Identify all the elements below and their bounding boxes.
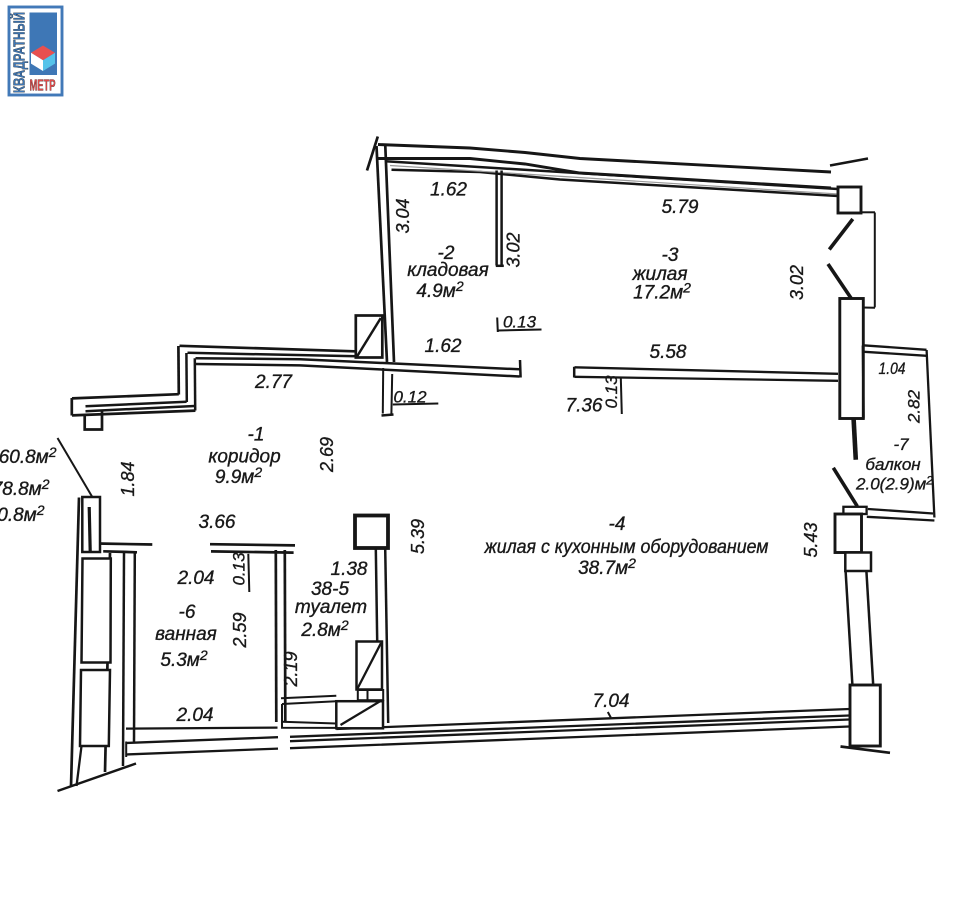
svg-text:туалет: туалет xyxy=(295,597,367,618)
svg-text:МЕТР: МЕТР xyxy=(30,78,56,95)
svg-text:0.13: 0.13 xyxy=(230,552,249,586)
svg-text:2.0(2.9)м2: 2.0(2.9)м2 xyxy=(855,474,933,494)
svg-text:3.66: 3.66 xyxy=(199,512,236,533)
svg-text:2.04: 2.04 xyxy=(176,705,214,726)
svg-text:КВАДРАТНЫЙ: КВАДРАТНЫЙ xyxy=(11,12,29,93)
svg-text:0.13: 0.13 xyxy=(503,313,537,332)
svg-text:1.62: 1.62 xyxy=(430,180,467,201)
svg-text:-3: -3 xyxy=(662,245,679,266)
svg-text:2.77: 2.77 xyxy=(254,372,293,393)
svg-text:0.12: 0.12 xyxy=(393,388,427,407)
svg-text:5.79: 5.79 xyxy=(662,197,699,218)
svg-text:5.39: 5.39 xyxy=(408,519,428,554)
svg-text:1.84: 1.84 xyxy=(118,461,138,496)
svg-text:кладовая: кладовая xyxy=(407,260,489,281)
svg-text:3.04: 3.04 xyxy=(393,198,413,233)
svg-text:2.69: 2.69 xyxy=(317,437,337,473)
svg-text:2.19: 2.19 xyxy=(281,651,301,687)
svg-text:3.02: 3.02 xyxy=(504,232,524,267)
svg-text:1.38: 1.38 xyxy=(331,559,368,580)
svg-text:жилая с кухонным оборудованием: жилая с кухонным оборудованием xyxy=(484,537,769,558)
svg-text:ванная: ванная xyxy=(155,624,217,645)
svg-text:3.02: 3.02 xyxy=(787,265,807,300)
svg-text:5.58: 5.58 xyxy=(650,342,687,363)
svg-text:коридор: коридор xyxy=(208,447,280,468)
svg-text:17.2м2: 17.2м2 xyxy=(633,280,691,304)
svg-text:2.59: 2.59 xyxy=(230,612,250,648)
svg-text:-6: -6 xyxy=(179,602,196,623)
svg-text:1.62: 1.62 xyxy=(425,336,462,357)
svg-text:0.13: 0.13 xyxy=(602,375,621,409)
svg-text:-4: -4 xyxy=(609,514,626,535)
svg-text:2.82: 2.82 xyxy=(905,389,924,424)
svg-text:60.8м2: 60.8м2 xyxy=(0,444,57,468)
svg-text:2.04: 2.04 xyxy=(177,568,215,589)
svg-text:балкон: балкон xyxy=(865,455,921,474)
svg-text:-1: -1 xyxy=(248,425,265,446)
svg-text:38.7м2: 38.7м2 xyxy=(578,555,636,579)
svg-text:1.04: 1.04 xyxy=(879,359,906,378)
svg-text:7.04: 7.04 xyxy=(593,691,630,712)
svg-text:7.36: 7.36 xyxy=(566,396,603,417)
svg-text:-7: -7 xyxy=(893,435,909,454)
svg-text:5.43: 5.43 xyxy=(801,522,821,557)
